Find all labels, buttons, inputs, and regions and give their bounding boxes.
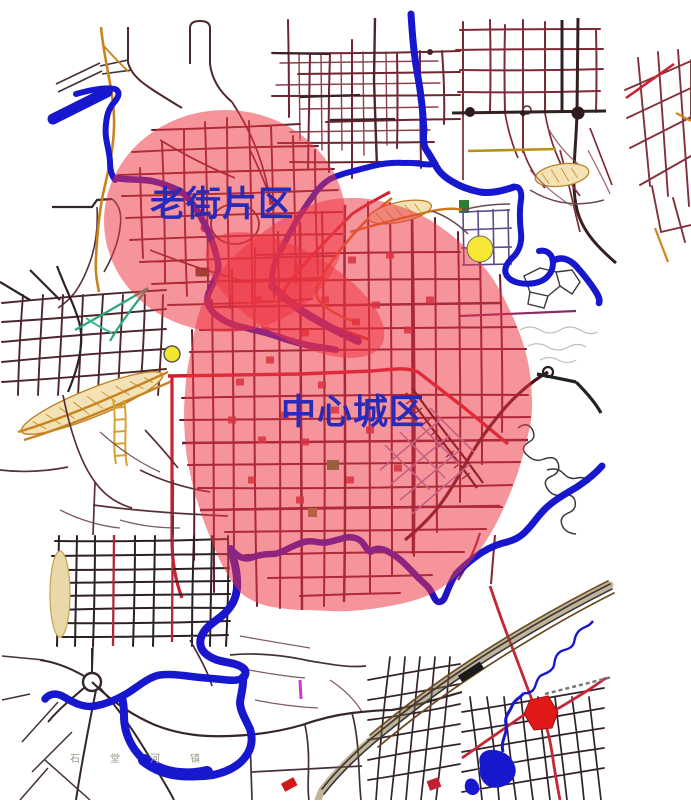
svg-text:中心城区: 中心城区 <box>281 393 425 432</box>
svg-text:老街片区: 老街片区 <box>150 185 294 224</box>
svg-text:石堂河镇: 石堂河镇 <box>70 752 230 765</box>
